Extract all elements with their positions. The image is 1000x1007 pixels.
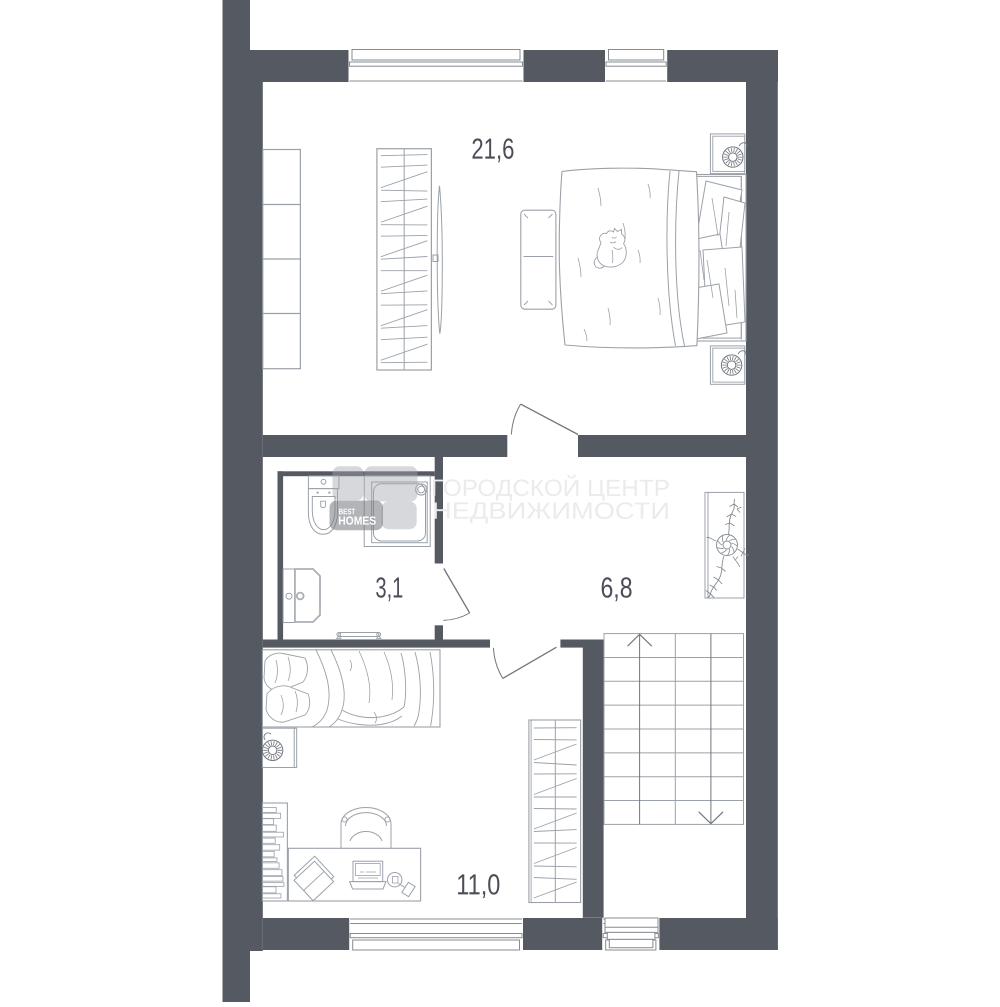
svg-text:6,8: 6,8 (600, 572, 632, 604)
svg-text:НЕДВИЖИМОСТИ: НЕДВИЖИМОСТИ (432, 498, 670, 524)
svg-text:21,6: 21,6 (471, 134, 514, 166)
svg-text:3,1: 3,1 (375, 572, 403, 604)
svg-text:HOMES: HOMES (338, 514, 376, 528)
svg-text:11,0: 11,0 (456, 869, 500, 901)
